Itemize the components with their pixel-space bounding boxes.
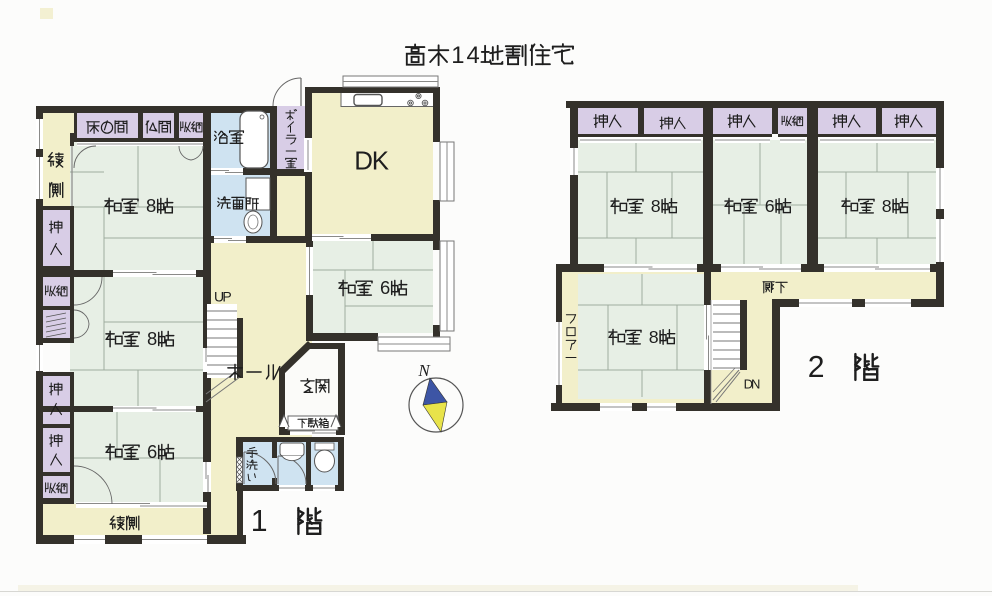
- svg-text:8: 8: [651, 196, 661, 216]
- svg-text:8: 8: [146, 195, 156, 216]
- svg-text:8: 8: [649, 327, 659, 347]
- svg-text:8: 8: [147, 328, 157, 349]
- svg-text:6: 6: [765, 196, 775, 216]
- svg-text:D: D: [354, 148, 373, 176]
- svg-text:N: N: [751, 376, 760, 391]
- svg-text:P: P: [222, 289, 231, 305]
- svg-text:4: 4: [466, 42, 479, 69]
- svg-text:1: 1: [451, 42, 464, 69]
- svg-text:6: 6: [380, 277, 390, 298]
- svg-text:N: N: [417, 361, 431, 380]
- svg-text:1: 1: [251, 505, 268, 538]
- svg-text:8: 8: [882, 196, 892, 216]
- svg-text:K: K: [372, 148, 389, 176]
- svg-text:6: 6: [147, 441, 157, 462]
- svg-text:2: 2: [808, 351, 825, 384]
